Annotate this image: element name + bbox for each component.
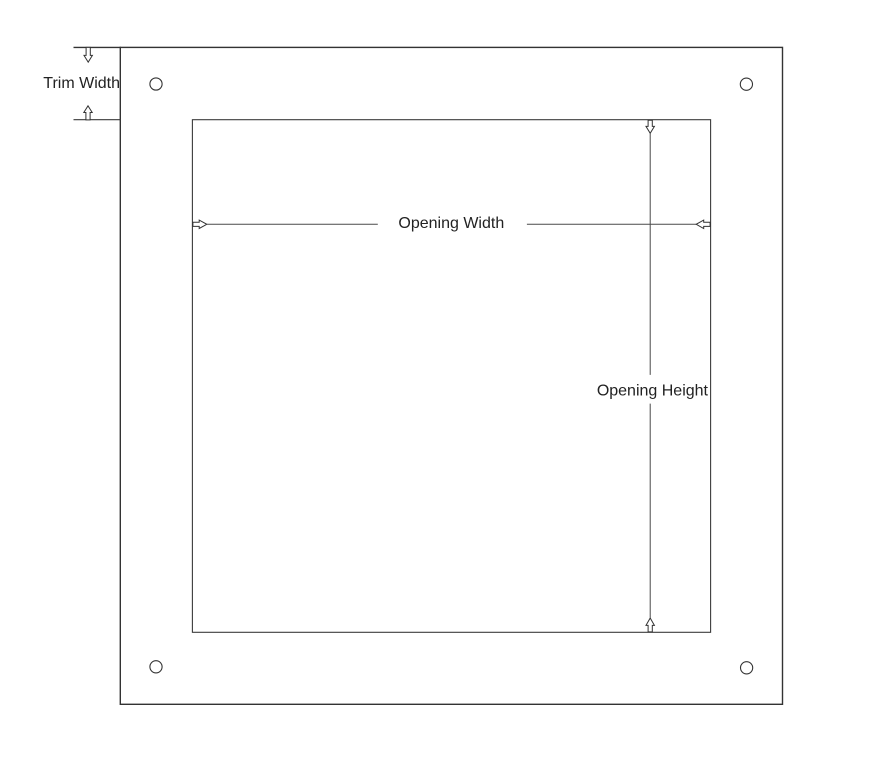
svg-text:Trim Width: Trim Width — [43, 75, 120, 92]
svg-text:Opening Height: Opening Height — [597, 383, 709, 400]
svg-text:Opening Width: Opening Width — [398, 215, 504, 232]
